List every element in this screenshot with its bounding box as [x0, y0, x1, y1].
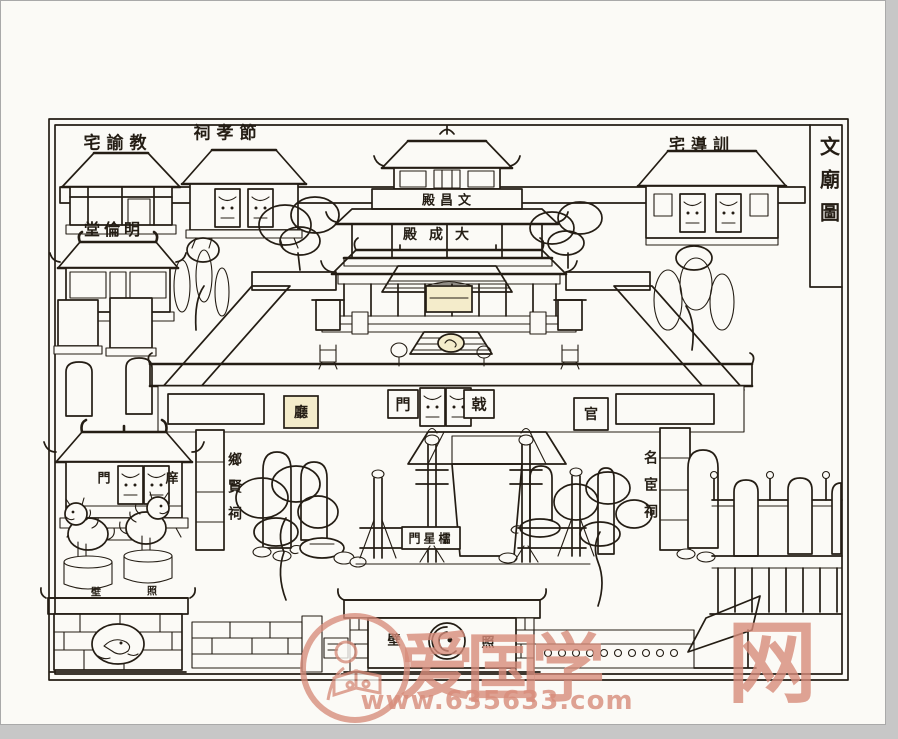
- willow-left: [174, 238, 229, 330]
- label-official-hall-ting: 廳: [294, 402, 308, 422]
- label-minglun-hall: 堂倫明: [84, 216, 144, 240]
- label-official-hall-guan: 官: [584, 404, 598, 424]
- label-zhaobi-left: 壁: [387, 630, 400, 649]
- label-jiexiao-shrine: 祠孝節: [194, 119, 263, 144]
- scanned-woodblock-page: 文廟圖 宅諭教 祠孝節 殿昌文 宅導訓 堂倫明 殿成大 門 戟 廳 官 鄉賢祠 …: [0, 0, 898, 739]
- label-dacheng-hall: 殿成大: [403, 224, 481, 244]
- label-wenchang-hall: 殿昌文: [422, 190, 476, 209]
- label-small-wall-left: 壁: [91, 584, 101, 599]
- central-ramp: [452, 464, 522, 556]
- minghuan-shrine-wall: [660, 428, 690, 550]
- label-xiang-gate-left: 門: [97, 468, 110, 487]
- label-small-wall-right: 照: [147, 583, 157, 598]
- label-minghuan-shrine: 名宦祠: [640, 450, 660, 531]
- label-lingxing-gate: 門星櫺: [408, 530, 453, 547]
- building-dacheng-hall: [321, 238, 577, 354]
- building-jiexiao-shrine: [182, 150, 306, 248]
- label-xiang-gate-right: 庠: [165, 468, 178, 487]
- label-jiaoyu-residence: 宅諭教: [84, 129, 153, 154]
- watermark-brand-char-4: 网: [727, 590, 817, 720]
- dragon-medallion: [438, 334, 464, 352]
- building-xundao-residence: [638, 151, 786, 245]
- map-title: 文廟圖: [815, 136, 844, 235]
- label-ji-gate-right: 戟: [471, 394, 486, 415]
- small-screen-wall: [41, 588, 195, 672]
- label-xiangxian-shrine: 鄉賢祠: [224, 452, 244, 533]
- stone-tablets: [54, 298, 156, 416]
- label-xundao-residence: 宅導訓: [669, 131, 735, 155]
- label-ji-gate-left: 門: [395, 394, 410, 415]
- fish-medallion: [92, 624, 144, 664]
- building-wenchang-pavilion: [326, 126, 568, 292]
- watermark-url: www.635633.com: [360, 686, 633, 716]
